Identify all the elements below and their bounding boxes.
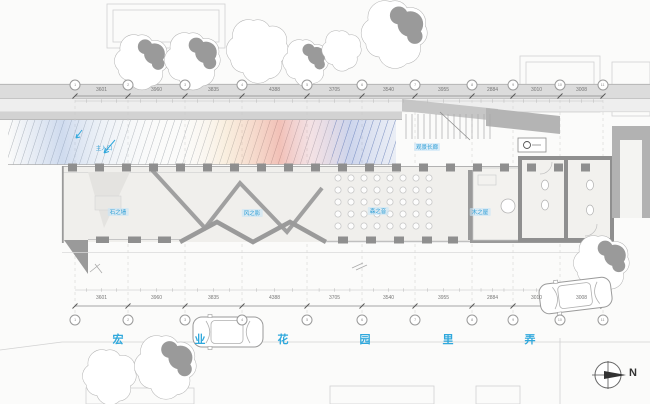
zone-label: 木之屋 bbox=[470, 208, 491, 216]
grid-bubble-top: 10 bbox=[555, 80, 566, 91]
wood-house-room bbox=[473, 168, 520, 240]
section-mark bbox=[352, 263, 367, 270]
canopy-edge-strip bbox=[0, 112, 402, 120]
dimension-value-bottom: 3955 bbox=[438, 295, 449, 301]
street-name-char: 里 bbox=[443, 331, 454, 347]
north-label: N bbox=[629, 367, 637, 379]
dimension-value-top: 3601 bbox=[96, 87, 107, 93]
entry-ramp bbox=[64, 240, 88, 274]
section-mark bbox=[90, 264, 102, 273]
dimension-value-bottom: 3835 bbox=[208, 295, 219, 301]
grid-bubble-bottom: 5 bbox=[302, 315, 313, 326]
restrooms bbox=[518, 138, 612, 240]
grid-bubble-top: 3 bbox=[180, 80, 191, 91]
zone-label: 森之音 bbox=[368, 207, 389, 215]
dimension-value-top: 3540 bbox=[383, 87, 394, 93]
grid-bubble-top: 4 bbox=[237, 80, 248, 91]
grid-bubble-bottom: 9 bbox=[508, 315, 519, 326]
entrance-label: 主入口 bbox=[96, 144, 113, 152]
east-corridor-walls bbox=[612, 126, 650, 218]
grid-bubble-top: 8 bbox=[467, 80, 478, 91]
dimension-value-top: 3955 bbox=[438, 87, 449, 93]
plaza-marks bbox=[62, 253, 610, 274]
site-plan: N 36013960383543883705354039552884301030… bbox=[0, 0, 650, 404]
dimension-value-bottom: 3008 bbox=[576, 295, 587, 301]
dimension-value-top: 3960 bbox=[151, 87, 162, 93]
grid-bubble-bottom: 3 bbox=[180, 315, 191, 326]
zone-label: 风之影 bbox=[242, 209, 263, 217]
grid-bubble-top: 2 bbox=[123, 80, 134, 91]
grid-bubble-bottom: 4 bbox=[237, 315, 248, 326]
north-arrow-icon bbox=[592, 361, 626, 389]
grid-bubble-bottom: 7 bbox=[410, 315, 421, 326]
dimension-value-top: 3010 bbox=[531, 87, 542, 93]
grid-bubble-top: 7 bbox=[410, 80, 421, 91]
dimension-value-bottom: 3540 bbox=[383, 295, 394, 301]
grid-bubble-bottom: 2 bbox=[123, 315, 134, 326]
tree bbox=[227, 20, 289, 83]
dimension-value-bottom: 4388 bbox=[269, 295, 280, 301]
dimension-value-bottom: 3960 bbox=[151, 295, 162, 301]
zone-label: 石之墙 bbox=[108, 208, 129, 216]
canopy-hatch bbox=[8, 120, 396, 165]
dimension-value-bottom: 3601 bbox=[96, 295, 107, 301]
grid-bubble-top: 1 bbox=[70, 80, 81, 91]
dimension-value-top: 3008 bbox=[576, 87, 587, 93]
dimension-value-bottom: 2884 bbox=[487, 295, 498, 301]
street-name-char: 弄 bbox=[525, 331, 536, 347]
corridor-label: 观景长廊 bbox=[414, 143, 440, 151]
tree bbox=[135, 336, 196, 399]
grid-bubble-bottom: 8 bbox=[467, 315, 478, 326]
street-name-char: 花 bbox=[278, 331, 289, 347]
dimension-value-bottom: 3705 bbox=[329, 295, 340, 301]
street-name-char: 宏 bbox=[113, 331, 124, 347]
dimension-value-top: 3705 bbox=[329, 87, 340, 93]
tree bbox=[165, 33, 220, 90]
plan-linework bbox=[0, 0, 650, 404]
dimension-value-bottom: 3010 bbox=[531, 295, 542, 301]
grid-bubble-bottom: 6 bbox=[357, 315, 368, 326]
street-name-char: 园 bbox=[360, 331, 371, 347]
grid-bubble-bottom: 1 bbox=[70, 315, 81, 326]
dimension-value-top: 4388 bbox=[269, 87, 280, 93]
street-name-char: 业 bbox=[195, 331, 206, 347]
grid-bubble-bottom: 11 bbox=[598, 315, 609, 326]
grid-bubble-top: 5 bbox=[302, 80, 313, 91]
sink-icon bbox=[518, 138, 546, 152]
grid-bubble-top: 6 bbox=[357, 80, 368, 91]
grid-bubble-top: 9 bbox=[508, 80, 519, 91]
tree bbox=[83, 350, 136, 404]
grid-bubble-bottom: 10 bbox=[555, 315, 566, 326]
dimension-value-top: 2884 bbox=[487, 87, 498, 93]
dimension-value-top: 3835 bbox=[208, 87, 219, 93]
grid-bubble-top: 11 bbox=[598, 80, 609, 91]
tree bbox=[361, 1, 427, 68]
